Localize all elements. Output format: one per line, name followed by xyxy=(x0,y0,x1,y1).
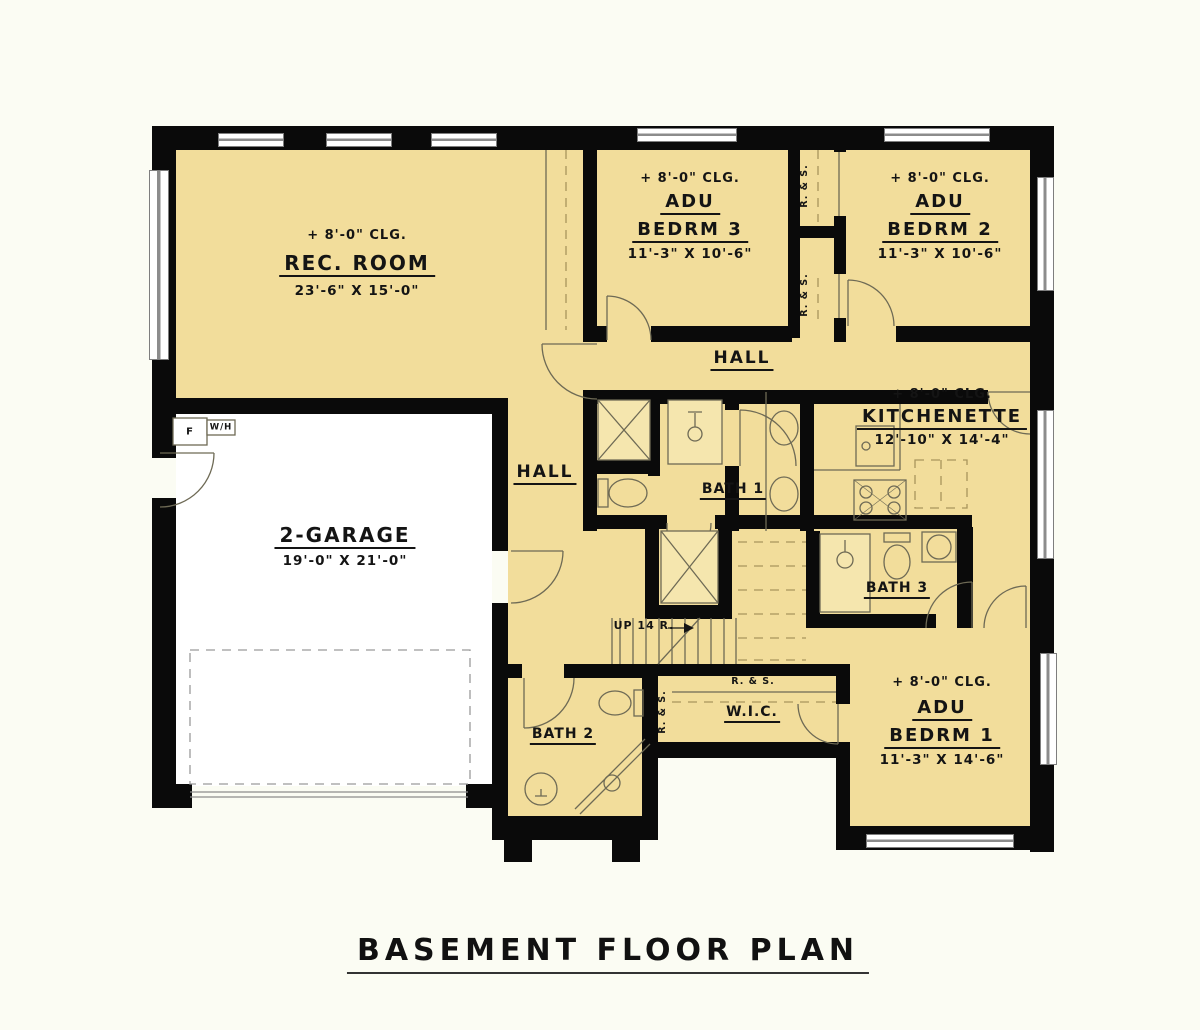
sheet-title: BASEMENT FLOOR PLAN xyxy=(347,933,869,974)
detail-overlay xyxy=(0,0,1200,1030)
bedrm3-adu: ADU xyxy=(660,192,720,215)
rec-room-ceiling: + 8'-0" CLG. xyxy=(307,229,407,243)
kitchenette-label: KITCHENETTE xyxy=(857,407,1027,430)
bath2-label: BATH 2 xyxy=(530,727,596,745)
bath1-fixtures xyxy=(598,392,798,531)
bedrm3-dims: 11'-3" X 10'-6" xyxy=(628,247,753,262)
rod-shelf-label: R. & S. xyxy=(800,273,810,316)
kitchenette-ceiling: + 8'-0" CLG. xyxy=(892,388,992,402)
rec-room-dims: 23'-6" X 15'-0" xyxy=(295,284,420,299)
rec-room-label: REC. ROOM xyxy=(279,252,435,277)
bath2-fixtures xyxy=(525,690,650,814)
hall-upper-label: HALL xyxy=(710,349,773,371)
furnace-label: F xyxy=(186,427,194,438)
bedrm2-dims: 11'-3" X 10'-6" xyxy=(878,247,1003,262)
bedrm1-ceiling: + 8'-0" CLG. xyxy=(892,676,992,690)
fridge-dashed xyxy=(915,460,967,508)
stair-storage-x xyxy=(661,531,718,603)
up-stairs-label: UP 14 R. xyxy=(614,620,675,632)
wic-label: W.I.C. xyxy=(724,705,780,723)
bath3-label: BATH 3 xyxy=(864,581,930,599)
bedrm1-dims: 11'-3" X 14'-6" xyxy=(880,753,1005,768)
garage-slab-dashed xyxy=(190,650,470,784)
kitchenette-dims: 12'-10" X 14'-4" xyxy=(874,433,1009,448)
bedrm3-label: BEDRM 3 xyxy=(632,220,748,243)
hall-lower-label: HALL xyxy=(513,463,576,485)
rod-shelf-label: R. & S. xyxy=(731,677,774,687)
bedrm2-adu: ADU xyxy=(910,192,970,215)
bedrm2-label: BEDRM 2 xyxy=(882,220,998,243)
garage-label: 2-GARAGE xyxy=(274,524,415,549)
bedrm2-ceiling: + 8'-0" CLG. xyxy=(890,172,990,186)
bath1-label: BATH 1 xyxy=(700,482,766,500)
floor-plan: + 8'-0" CLG. REC. ROOM 23'-6" X 15'-0" +… xyxy=(0,0,1200,1030)
bedrm3-ceiling: + 8'-0" CLG. xyxy=(640,172,740,186)
bedrm1-adu: ADU xyxy=(912,698,972,721)
rod-shelf-label: R. & S. xyxy=(658,690,668,733)
bedrm1-label: BEDRM 1 xyxy=(884,726,1000,749)
water-heater-label: W/H xyxy=(210,423,233,432)
garage-dims: 19'-0" X 21'-0" xyxy=(283,554,408,569)
rod-shelf-label: R. & S. xyxy=(800,164,810,207)
